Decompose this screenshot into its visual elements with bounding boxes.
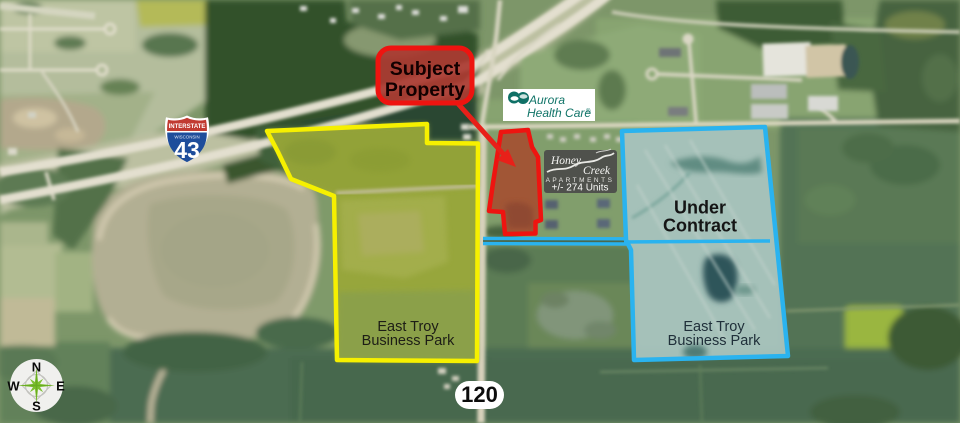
svg-text:Aurora: Aurora <box>528 93 565 107</box>
svg-text:®: ® <box>586 108 591 115</box>
svg-text:S: S <box>32 399 41 414</box>
svg-text:Contract: Contract <box>663 216 737 236</box>
svg-text:Creek: Creek <box>583 165 611 177</box>
svg-text:Subject: Subject <box>390 58 461 80</box>
svg-text:Business Park: Business Park <box>668 333 761 349</box>
svg-text:43: 43 <box>174 137 200 163</box>
svg-text:N: N <box>32 360 41 375</box>
svg-text:INTERSTATE: INTERSTATE <box>169 124 206 130</box>
svg-text:Under: Under <box>674 198 726 218</box>
svg-text:Honey: Honey <box>550 155 582 167</box>
svg-text:+/- 274 Units: +/- 274 Units <box>552 183 609 194</box>
svg-text:E: E <box>56 379 65 394</box>
svg-text:W: W <box>7 379 20 394</box>
svg-text:Health Care: Health Care <box>527 106 591 120</box>
svg-text:Property: Property <box>385 79 465 101</box>
svg-text:120: 120 <box>461 382 498 407</box>
svg-text:Business Park: Business Park <box>362 333 455 349</box>
